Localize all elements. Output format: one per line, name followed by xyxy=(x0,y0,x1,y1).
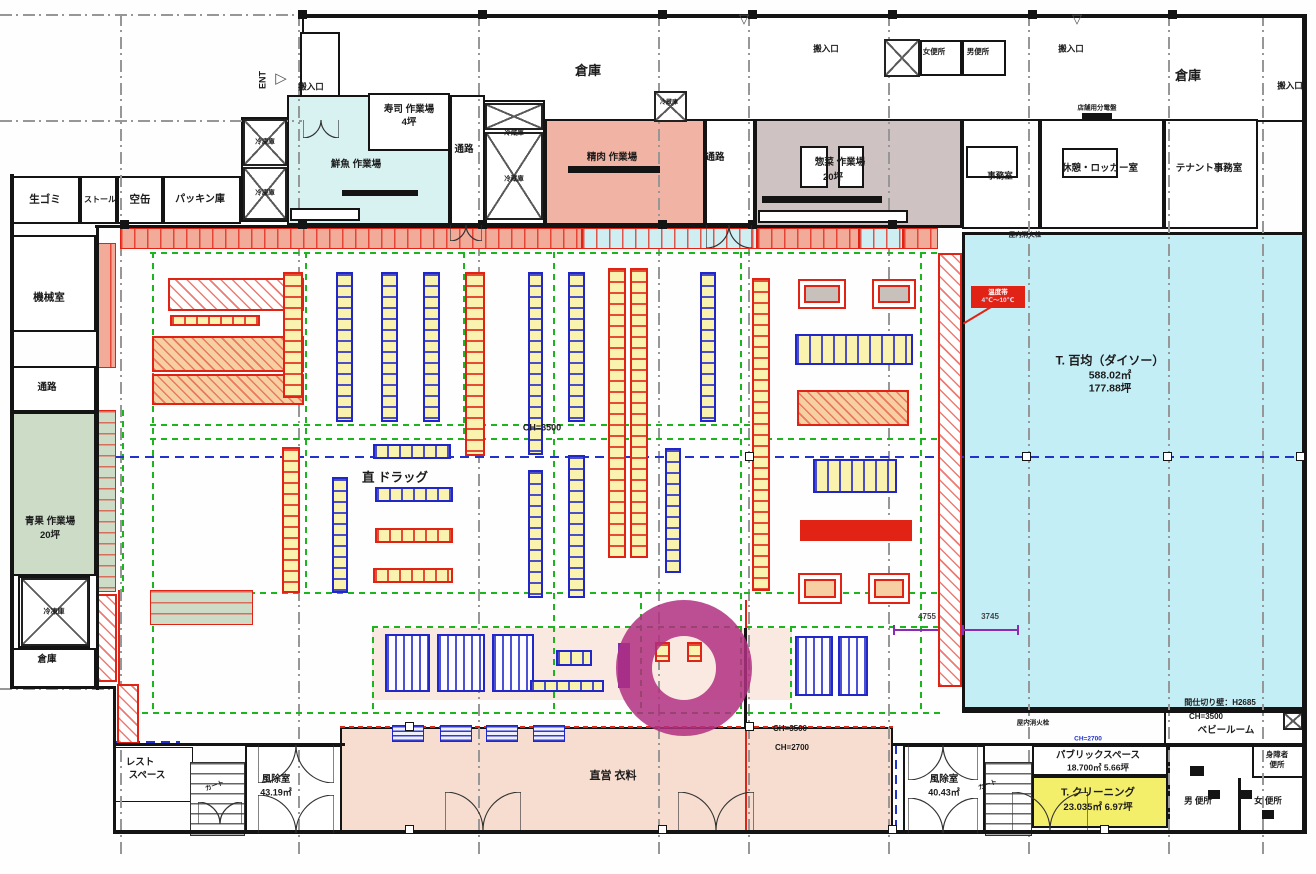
plan-label: 20坪 xyxy=(40,531,60,541)
fixture-nested-table xyxy=(872,279,916,309)
line-gridh xyxy=(0,14,302,16)
checkout-register xyxy=(795,636,833,696)
fixture-nested-table xyxy=(868,573,910,604)
double-door-symbol xyxy=(908,798,978,833)
line-gridv xyxy=(888,14,890,854)
line-gdv xyxy=(152,252,154,712)
plan-label: CH=3500 xyxy=(1189,713,1223,721)
grid-node xyxy=(745,722,754,731)
fixture-table xyxy=(758,210,908,223)
label-daiso-area-m2: 588.02㎡ xyxy=(1089,370,1132,381)
structural-column xyxy=(658,220,667,229)
plan-label: 屋内消火栓 xyxy=(1009,233,1042,240)
fixture-gondola-blue xyxy=(813,459,897,493)
fixture-gondola-blue xyxy=(381,272,398,422)
double-door-symbol xyxy=(258,795,334,833)
fixture-gondola-blue xyxy=(795,334,913,365)
basket-stand xyxy=(486,725,518,742)
fixture-gondola-blue xyxy=(336,272,353,422)
plan-label: CH=3500 xyxy=(773,725,807,733)
fixture-gondola-red xyxy=(465,272,485,456)
plan-label: 男 便所 xyxy=(1184,797,1212,806)
label-cleaning: T. クリーニング xyxy=(1061,787,1135,798)
plan-label: 冷凍庫 xyxy=(255,140,275,147)
plan-label: 18.700㎡ 5.66坪 xyxy=(1067,764,1129,773)
plan-label: 通路 xyxy=(37,383,56,393)
line-gdv xyxy=(790,626,792,712)
dim-3745: 3745 xyxy=(981,613,999,621)
fixture-gondola-blue xyxy=(530,680,604,692)
grid-node xyxy=(1100,825,1109,834)
dim-4755: 4755 xyxy=(918,613,936,621)
highlight-circle-annotation xyxy=(616,600,752,736)
fixture-hatched-orange xyxy=(152,336,304,372)
wall-segment xyxy=(96,228,99,690)
plan-label: 生ゴミ xyxy=(29,194,61,205)
line-gridv xyxy=(1028,14,1030,854)
fixture-gondola-red xyxy=(283,272,303,398)
label-warehouse-right: 倉庫 xyxy=(1175,69,1201,83)
structural-column xyxy=(298,10,307,19)
fixture-gondola-blue xyxy=(568,455,585,598)
line-ppv xyxy=(893,625,895,635)
label-daiso-area-tsubo: 177.88坪 xyxy=(1089,383,1132,394)
label-clothing: 直営 衣料 xyxy=(589,771,636,783)
line-gdv xyxy=(920,252,922,712)
plan-label: 風除室 xyxy=(262,775,291,785)
freezer-xbox xyxy=(884,39,920,77)
plan-label: ENT xyxy=(258,71,267,89)
fixture-gondola-blue xyxy=(373,444,451,459)
fixture-gondola-red xyxy=(170,315,260,326)
grid-node xyxy=(658,825,667,834)
plan-label: 冷凍庫 xyxy=(44,608,65,615)
fixture-gondola-blue xyxy=(528,470,543,598)
checkout-register xyxy=(492,634,534,692)
fixture-gondola-blue xyxy=(568,272,585,422)
fixture-wall-case-green xyxy=(97,410,116,592)
line-gridv xyxy=(298,14,300,854)
wall-segment xyxy=(113,688,116,832)
structural-column xyxy=(1168,10,1177,19)
fixture-counter xyxy=(762,196,882,203)
fixture-wall-case-red xyxy=(757,228,859,249)
freezer-xbox xyxy=(654,91,687,122)
plan-label: 20坪 xyxy=(823,173,843,183)
double-door-symbol xyxy=(303,120,339,138)
structural-column xyxy=(748,10,757,19)
label-daiso-name: T. 百均（ダイソー） xyxy=(1056,355,1165,368)
plan-label: 間仕切り壁：H2685 xyxy=(1184,699,1256,707)
plan-label: 風除室 xyxy=(930,775,959,785)
plan-label: 倉庫 xyxy=(37,655,56,665)
fixture-gondola-red xyxy=(373,568,453,583)
plan-label: CH=2700 xyxy=(775,744,809,752)
grid-node xyxy=(405,722,414,731)
plan-label: ストール xyxy=(84,196,116,204)
fixture-counter xyxy=(1082,113,1112,120)
fixture-nested-inner xyxy=(878,285,910,303)
plan-label: 40.43㎡ xyxy=(928,788,960,797)
double-door-symbol xyxy=(706,225,752,248)
wall-segment xyxy=(10,174,14,688)
plan-label: CH=3500 xyxy=(523,423,561,432)
structural-column xyxy=(888,10,897,19)
wall-segment xyxy=(1238,778,1241,832)
plan-label: 搬入口 xyxy=(813,45,839,54)
plan-label: 女 便所 xyxy=(1254,797,1282,806)
fixture-wall-case-red xyxy=(903,228,938,249)
line-gridv xyxy=(1168,14,1170,854)
fixture-hatched-orange xyxy=(797,390,909,426)
plan-label: CH=2700 xyxy=(1074,737,1102,744)
plan-label: 冷蔵庫 xyxy=(504,131,524,138)
fixture-gondola-red xyxy=(375,528,453,543)
plan-label: パッキン庫 xyxy=(175,195,225,206)
plan-label: 通路 xyxy=(705,153,724,163)
line-gridv xyxy=(1262,14,1264,854)
line-bdv xyxy=(895,745,897,831)
fixture-hatched-red xyxy=(938,253,962,687)
fixture-hatched-red xyxy=(97,594,117,682)
plan-label: パブリックスペース xyxy=(1056,751,1140,761)
fixture-gondola-red xyxy=(282,447,300,593)
freezer-xbox xyxy=(1283,712,1303,730)
structural-column xyxy=(298,220,307,229)
plan-label: 空缶 xyxy=(130,194,151,205)
line-ppv xyxy=(1017,625,1019,635)
double-door-symbol xyxy=(445,792,521,830)
plan-label: ▷ xyxy=(275,71,287,87)
plan-label: 鮮魚 作業場 xyxy=(331,160,381,170)
fixture-nested-inner xyxy=(874,579,904,598)
fixture-counter xyxy=(568,166,660,173)
plan-label: 青果 作業場 xyxy=(25,517,75,527)
grid-node xyxy=(745,452,754,461)
label-drug-section: 直 ドラッグ xyxy=(362,471,428,484)
fixture-counter xyxy=(1240,790,1252,799)
plan-label: 通路 xyxy=(454,145,473,155)
room-produce-workroom xyxy=(10,412,96,576)
wall-segment xyxy=(10,686,116,689)
plan-label: 冷蔵庫 xyxy=(504,177,524,184)
line-gdh xyxy=(120,712,940,714)
plan-label: テナント事務室 xyxy=(1176,164,1243,174)
fixture-counter xyxy=(342,190,418,196)
cart-ramp xyxy=(190,762,245,836)
fixture-gondola-red xyxy=(608,268,626,558)
fixture-gondola-blue xyxy=(700,272,716,422)
plan-label: 男便所 xyxy=(967,48,990,56)
fixture-solid-red xyxy=(800,520,912,541)
structural-column xyxy=(1028,10,1037,19)
plan-label: ▽ xyxy=(739,12,749,26)
freezer-xbox xyxy=(485,103,543,130)
grid-node xyxy=(1022,452,1031,461)
wall-segment xyxy=(962,710,1307,713)
basket-stand xyxy=(533,725,565,742)
fixture-wall-case-red xyxy=(120,228,582,249)
fixture-hatched-red xyxy=(117,684,139,744)
structural-column xyxy=(120,220,129,229)
fixture-wall-case-cyan xyxy=(859,228,903,249)
plan-label: 便所 xyxy=(1270,761,1285,769)
double-door-symbol xyxy=(198,802,242,824)
fixture-nested-inner xyxy=(804,579,836,598)
fixture-nested-table xyxy=(798,279,846,309)
line-gdh xyxy=(150,252,940,254)
wall-segment xyxy=(95,225,964,228)
line-ppv xyxy=(962,625,964,635)
double-door-symbol xyxy=(450,225,482,241)
plan-label: 休憩・ロッカー室 xyxy=(1062,164,1138,174)
plan-label: 機械室 xyxy=(33,292,65,303)
plan-label: 冷蔵庫 xyxy=(660,100,678,106)
basket-stand xyxy=(440,725,472,742)
plan-label: 屋内消火栓 xyxy=(1017,721,1050,728)
fixture-wall-case-green xyxy=(150,590,253,625)
plan-label: 23.035㎡ 6.97坪 xyxy=(1063,803,1132,813)
line-gdv xyxy=(305,252,307,592)
line-gdv xyxy=(372,626,374,712)
plan-label: 搬入口 xyxy=(1277,82,1303,91)
plan-label: ▽ xyxy=(1072,12,1082,26)
fixture-hatched-orange xyxy=(152,374,304,405)
structural-column xyxy=(478,10,487,19)
plan-label: スペース xyxy=(129,771,166,781)
plan-label: 搬入口 xyxy=(1058,45,1084,54)
line-gdh xyxy=(150,438,940,440)
plan-label: 精肉 作業場 xyxy=(587,153,637,163)
plan-label: 冷凍庫 xyxy=(255,191,275,198)
checkout-register xyxy=(838,636,868,696)
floor-plan: 温度帯 4℃～10℃ 倉庫倉庫搬入口搬入口搬入口搬入口ENT▷▽▽生ゴミストール… xyxy=(0,0,1316,874)
fixture-nested-inner xyxy=(804,285,840,303)
plan-label: 搬入口 xyxy=(298,83,324,92)
label-warehouse-center: 倉庫 xyxy=(575,64,601,78)
grid-node xyxy=(1296,452,1305,461)
wall-segment xyxy=(302,14,1307,18)
temperature-callout: 温度帯 4℃～10℃ xyxy=(971,286,1025,308)
fixture-gondola-blue xyxy=(332,477,348,593)
room-wc-men-top xyxy=(962,40,1006,76)
plan-label: 事務室 xyxy=(987,172,1013,181)
double-door-symbol xyxy=(678,792,754,830)
plan-label: 4坪 xyxy=(402,118,417,128)
plan-label: レスト xyxy=(126,758,155,768)
fixture-nested-table xyxy=(798,573,842,604)
plan-label: 43.19㎡ xyxy=(260,788,292,797)
grid-node xyxy=(888,825,897,834)
grid-node xyxy=(405,825,414,834)
fixture-gondola-red xyxy=(752,278,770,591)
plan-label: ベビールーム xyxy=(1198,726,1255,736)
room-wc-women-top xyxy=(920,40,962,76)
line-gdv xyxy=(122,410,124,592)
fixture-gondola-blue xyxy=(375,487,453,502)
plan-label: 惣菜 作業場 xyxy=(815,158,865,168)
fixture-counter xyxy=(1190,766,1204,776)
structural-column xyxy=(658,10,667,19)
fixture-gondola-blue xyxy=(423,272,440,422)
fixture-gondola-blue xyxy=(556,650,592,666)
fixture-gondola-red xyxy=(630,268,648,558)
grid-node xyxy=(1163,452,1172,461)
structural-column xyxy=(888,220,897,229)
plan-label: 寿司 作業場 xyxy=(384,105,434,115)
callout-line-2: 4℃～10℃ xyxy=(971,297,1025,305)
fixture-counter xyxy=(1262,810,1274,819)
line-gdv xyxy=(553,252,555,712)
line-gdh xyxy=(150,424,750,426)
fixture-wall-case-red xyxy=(96,243,116,368)
plan-label: 女便所 xyxy=(923,48,946,56)
checkout-register xyxy=(437,634,485,692)
plan-label: 店舗用分電盤 xyxy=(1078,106,1117,113)
room-machine-room xyxy=(10,235,96,332)
fixture-gondola-blue xyxy=(665,448,681,573)
checkout-register xyxy=(385,634,430,692)
plan-label: 身障者 xyxy=(1266,751,1289,759)
room-corridor-1 xyxy=(450,95,485,225)
